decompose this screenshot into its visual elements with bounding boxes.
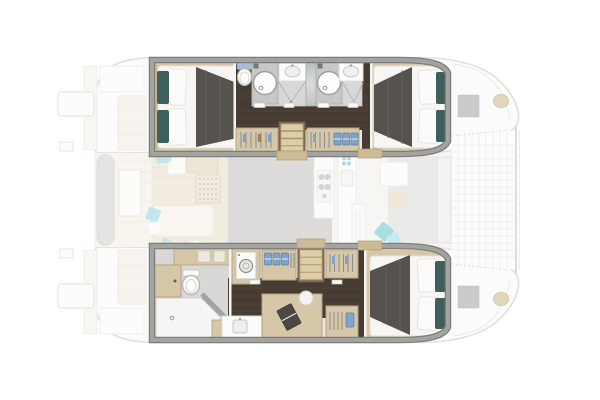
door-leaf (348, 103, 358, 108)
port-shower-room-aft (252, 58, 306, 108)
vanity-sink (222, 316, 264, 338)
foredeck-hatch-starboard (458, 286, 479, 308)
cockpit-table (119, 170, 141, 216)
companionway-steps (279, 122, 305, 154)
door-leaf (318, 103, 329, 108)
steps-landing (297, 239, 325, 248)
stern-tab-port (60, 142, 73, 151)
shower-icon (254, 72, 277, 95)
steps-landing (277, 151, 307, 160)
foredeck-hatch-port (458, 95, 479, 117)
saloon-table (186, 155, 218, 173)
port-forward-cabin (373, 60, 451, 154)
stool-icon (299, 291, 313, 305)
forward-table (380, 162, 408, 186)
chaise-cushion-2 (148, 221, 162, 235)
wardrobe-shirts (307, 128, 359, 152)
wardrobe-hangers (326, 250, 358, 278)
wardrobe-shirts (262, 250, 296, 280)
accent-pillow (157, 71, 169, 104)
cabin-landing (358, 241, 382, 250)
galley-sink (341, 170, 353, 186)
cockpit-bench (97, 155, 114, 245)
desk (262, 291, 322, 338)
sink-icon (285, 66, 300, 77)
wardrobe-hangers (326, 306, 358, 338)
forward-mat (390, 192, 406, 207)
forward-crossbeam (516, 126, 520, 274)
starboard-forward-cabin (367, 250, 451, 340)
vented-cabinet (196, 175, 220, 203)
accent-pillow (435, 298, 446, 329)
catamaran-floorplan (0, 0, 600, 400)
companionway-steps (298, 248, 324, 282)
folded-shirts (334, 133, 358, 145)
double-bed (370, 255, 446, 336)
door-leaf (284, 103, 294, 108)
door-leaf (250, 280, 260, 284)
starboard-aft-head (150, 246, 230, 340)
trampoline (450, 125, 518, 275)
port-hull-interior (150, 58, 451, 155)
port-aft-cabin (150, 60, 242, 154)
port-shower-room-forward (316, 58, 363, 108)
accent-pillow (435, 261, 446, 292)
sink-icon (344, 66, 359, 77)
washing-machine-icon (232, 248, 260, 284)
toilet-icon (237, 61, 252, 86)
door-leaf (332, 280, 342, 284)
bow-pad-starboard (494, 293, 509, 306)
cabin-landing (358, 149, 382, 158)
bow-pad-port (494, 95, 509, 108)
double-bed (374, 66, 447, 148)
forward-bench (438, 158, 450, 242)
double-bed (157, 66, 242, 148)
door-leaf (254, 103, 265, 108)
wardrobe-hangers (236, 128, 278, 152)
shower-icon (318, 72, 341, 95)
accent-pillow (157, 110, 169, 143)
swim-platform-starboard (58, 284, 94, 308)
swim-platform-port (58, 92, 94, 116)
starboard-hull-interior (150, 246, 451, 340)
stern-tab-starboard (60, 249, 73, 258)
glass-divider (306, 60, 316, 106)
cabinet (154, 265, 181, 297)
floorplan-canvas (0, 0, 600, 400)
toilet-icon (183, 270, 200, 295)
bulkhead (370, 60, 373, 154)
bulkhead (364, 250, 367, 338)
aft-cockpit (94, 153, 152, 247)
